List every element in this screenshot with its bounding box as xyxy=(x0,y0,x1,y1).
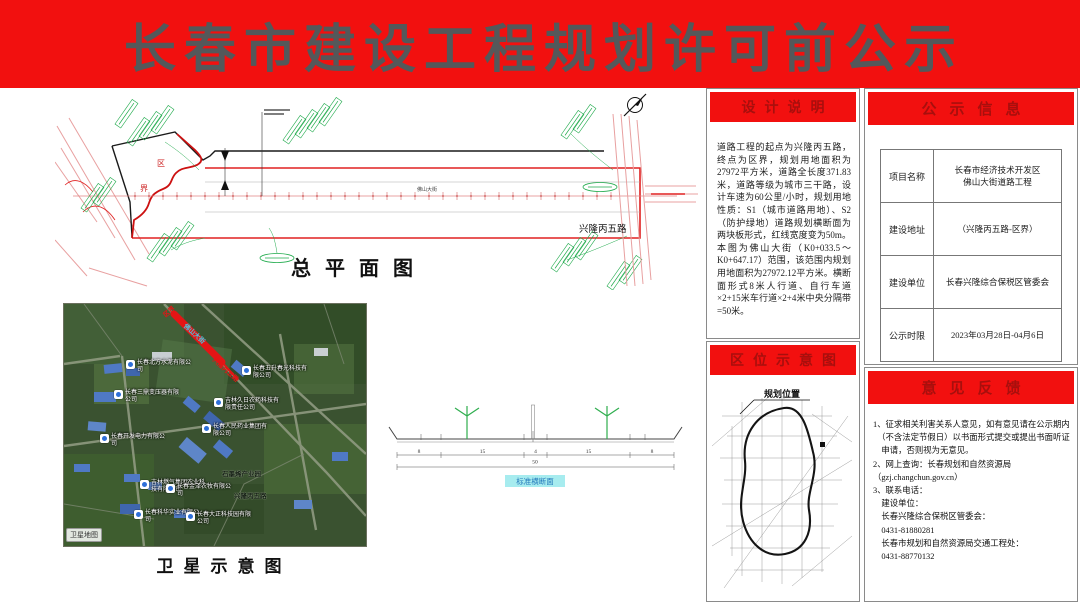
dimension-labels: 8154158 xyxy=(397,449,674,458)
feedback-line: （不含法定节假日）以书面形式提交或提出书面听证 xyxy=(873,431,1072,444)
road-deck xyxy=(389,427,682,439)
dimension-value: 15 xyxy=(480,449,486,455)
survey-marker-bottom xyxy=(221,180,229,190)
panel-location-title: 区位示意图 xyxy=(721,350,845,370)
panel-feedback-header: 意见反馈 xyxy=(868,371,1074,404)
feedback-text: 1、征求相关利害关系人意见，如有意见请在公示期内 （不含法定节假日）以书面形式提… xyxy=(873,418,1072,563)
table-row: 公示时限2023年03月28日-04月6日 xyxy=(881,309,1062,362)
plan-boundary xyxy=(112,132,604,237)
table-row: 建设地址（兴隆丙五路-区界） xyxy=(881,203,1062,256)
planning-notice-poster: 长春市建设工程规划许可前公示 区 界 xyxy=(0,0,1080,601)
site-location-marker xyxy=(820,442,825,447)
table-row: 建设单位长春兴隆综合保税区管委会 xyxy=(881,256,1062,309)
annotation-label xyxy=(115,99,138,128)
panel-location-header: 区位示意图 xyxy=(710,345,856,375)
row-value: 长春兴隆综合保税区管委会 xyxy=(934,256,1062,309)
feedback-line: 1、征求相关利害关系人意见，如有意见请在公示期内 xyxy=(873,418,1072,431)
street-tree-icon xyxy=(455,406,619,439)
leader-note-marks xyxy=(264,110,290,114)
notice-info-table: 项目名称长春市经济技术开发区佛山大街道路工程建设地址（兴隆丙五路-区界）建设单位… xyxy=(880,149,1062,362)
feedback-line: 建设单位： xyxy=(873,497,1072,510)
panel-design-notes: 设计说明 道路工程的起点为兴隆丙五路，终点为区界，规划用地面积为27972平方米… xyxy=(706,88,860,339)
satellite-svg xyxy=(64,304,366,546)
section-label: 标准横断面 xyxy=(516,476,554,486)
panel-feedback-title: 意见反馈 xyxy=(908,377,1033,398)
banner-title: 长春市建设工程规划许可前公示 xyxy=(116,7,964,82)
panel-notice-info: 公示信息 项目名称长春市经济技术开发区佛山大街道路工程建设地址（兴隆丙五路-区界… xyxy=(864,88,1078,365)
panel-feedback: 意见反馈 1、征求相关利害关系人意见，如有意见请在公示期内 （不含法定节假日）以… xyxy=(864,367,1078,602)
design-notes-text: 道路工程的起点为兴隆丙五路，终点为区界，规划用地面积为27972平方米，道路全长… xyxy=(717,141,851,317)
row-value: （兴隆丙五路-区界） xyxy=(934,203,1062,256)
area-label: 兴隆丙五路 xyxy=(234,490,267,500)
feedback-line: 0431-81880281 xyxy=(873,524,1072,537)
satellite-watermark: 卫星地图 xyxy=(66,528,102,542)
planning-location-label: 规划位置 xyxy=(764,388,800,399)
area-label: 石墨烯产业园 xyxy=(222,468,261,478)
site-plan-caption: 总平面图 xyxy=(205,252,499,281)
panel-design-title: 设计说明 xyxy=(733,97,834,117)
green-capsule-labels xyxy=(165,134,627,263)
dimension-value: 4 xyxy=(534,449,537,455)
location-map-svg: 规划位置 xyxy=(712,384,854,594)
boundary-char-1: 区 xyxy=(157,159,165,168)
cross-section-svg: 8154158 50 标准横断面 xyxy=(383,383,688,495)
red-line-corridor xyxy=(132,168,640,238)
north-arrow-icon xyxy=(624,94,646,116)
table-row: 项目名称长春市经济技术开发区佛山大街道路工程 xyxy=(881,150,1062,203)
feedback-line: 3、联系电话： xyxy=(873,484,1072,497)
row-label: 公示时限 xyxy=(881,309,934,362)
city-street-grid xyxy=(712,394,852,588)
right-intersection-roads xyxy=(613,114,698,286)
dimension-value: 15 xyxy=(586,449,592,455)
curb-ticks xyxy=(421,431,645,442)
feedback-line: 2、网上查询：长春规划和自然资源局（gzj.changchun.gov.cn） xyxy=(873,458,1072,484)
dimension-value: 8 xyxy=(418,449,421,455)
panel-notice-header: 公示信息 xyxy=(868,92,1074,125)
feedback-line: 长春兴隆综合保税区管委会： xyxy=(873,510,1072,523)
panel-notice-title: 公示信息 xyxy=(908,98,1033,119)
row-label: 建设单位 xyxy=(881,256,934,309)
total-width-label: 50 xyxy=(532,460,538,466)
feedback-line: 申请，否则视为无意见。 xyxy=(873,444,1072,457)
boundary-char-2: 界 xyxy=(140,184,148,193)
banner: 长春市建设工程规划许可前公示 xyxy=(0,0,1080,88)
road-name-label: 兴隆丙五路 xyxy=(579,223,627,235)
satellite-map: 长春北方水泥有限公司长春五升春光科技有限公司吉林久日农药科技有限责任公司长春人民… xyxy=(63,303,367,547)
row-label: 项目名称 xyxy=(881,150,934,203)
ring-road xyxy=(741,408,815,555)
feedback-line: 长春市规划和自然资源局交通工程处： xyxy=(873,537,1072,550)
feedback-line: 0431-88770132 xyxy=(873,550,1072,563)
lane-lines xyxy=(205,182,640,212)
station-ticks xyxy=(134,192,612,200)
panel-design-header: 设计说明 xyxy=(710,92,856,122)
row-value: 长春市经济技术开发区佛山大街道路工程 xyxy=(934,150,1062,203)
dimension-value: 8 xyxy=(651,449,654,455)
survey-marker-top xyxy=(221,151,229,161)
satellite-caption: 卫星示意图 xyxy=(63,552,375,577)
cross-section-drawing: 8154158 50 标准横断面 xyxy=(383,383,688,495)
row-value: 2023年03月28日-04月6日 xyxy=(934,309,1062,362)
street-note: 佛山大街 xyxy=(417,186,437,193)
panel-location-map: 区位示意图 规划位置 xyxy=(706,341,860,602)
label-leader-line xyxy=(740,400,810,414)
row-label: 建设地址 xyxy=(881,203,934,256)
